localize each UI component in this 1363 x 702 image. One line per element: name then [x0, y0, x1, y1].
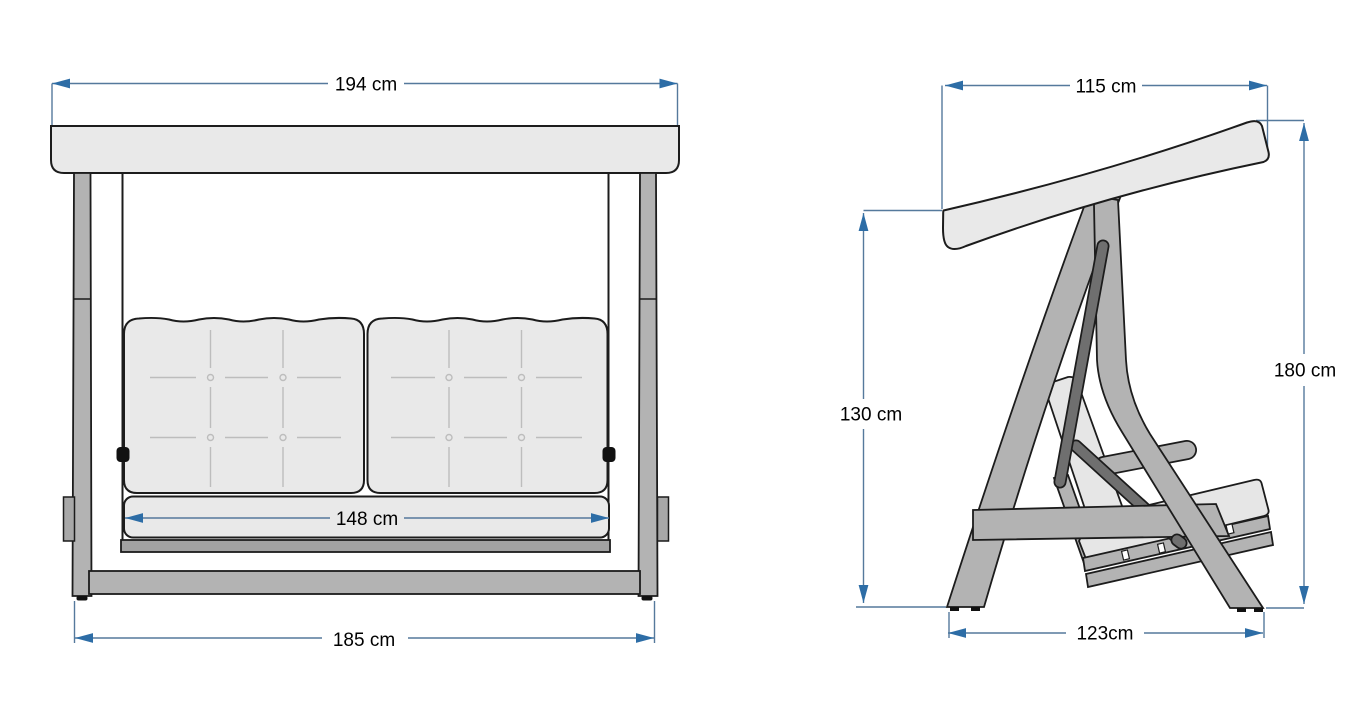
svg-text:194 cm: 194 cm: [335, 75, 397, 96]
svg-text:115 cm: 115 cm: [1076, 77, 1137, 98]
svg-text:180 cm: 180 cm: [1274, 361, 1336, 382]
svg-text:123cm: 123cm: [1076, 624, 1133, 645]
svg-text:148 cm: 148 cm: [336, 509, 398, 530]
svg-text:130 cm: 130 cm: [840, 405, 902, 426]
svg-text:185 cm: 185 cm: [333, 630, 395, 651]
